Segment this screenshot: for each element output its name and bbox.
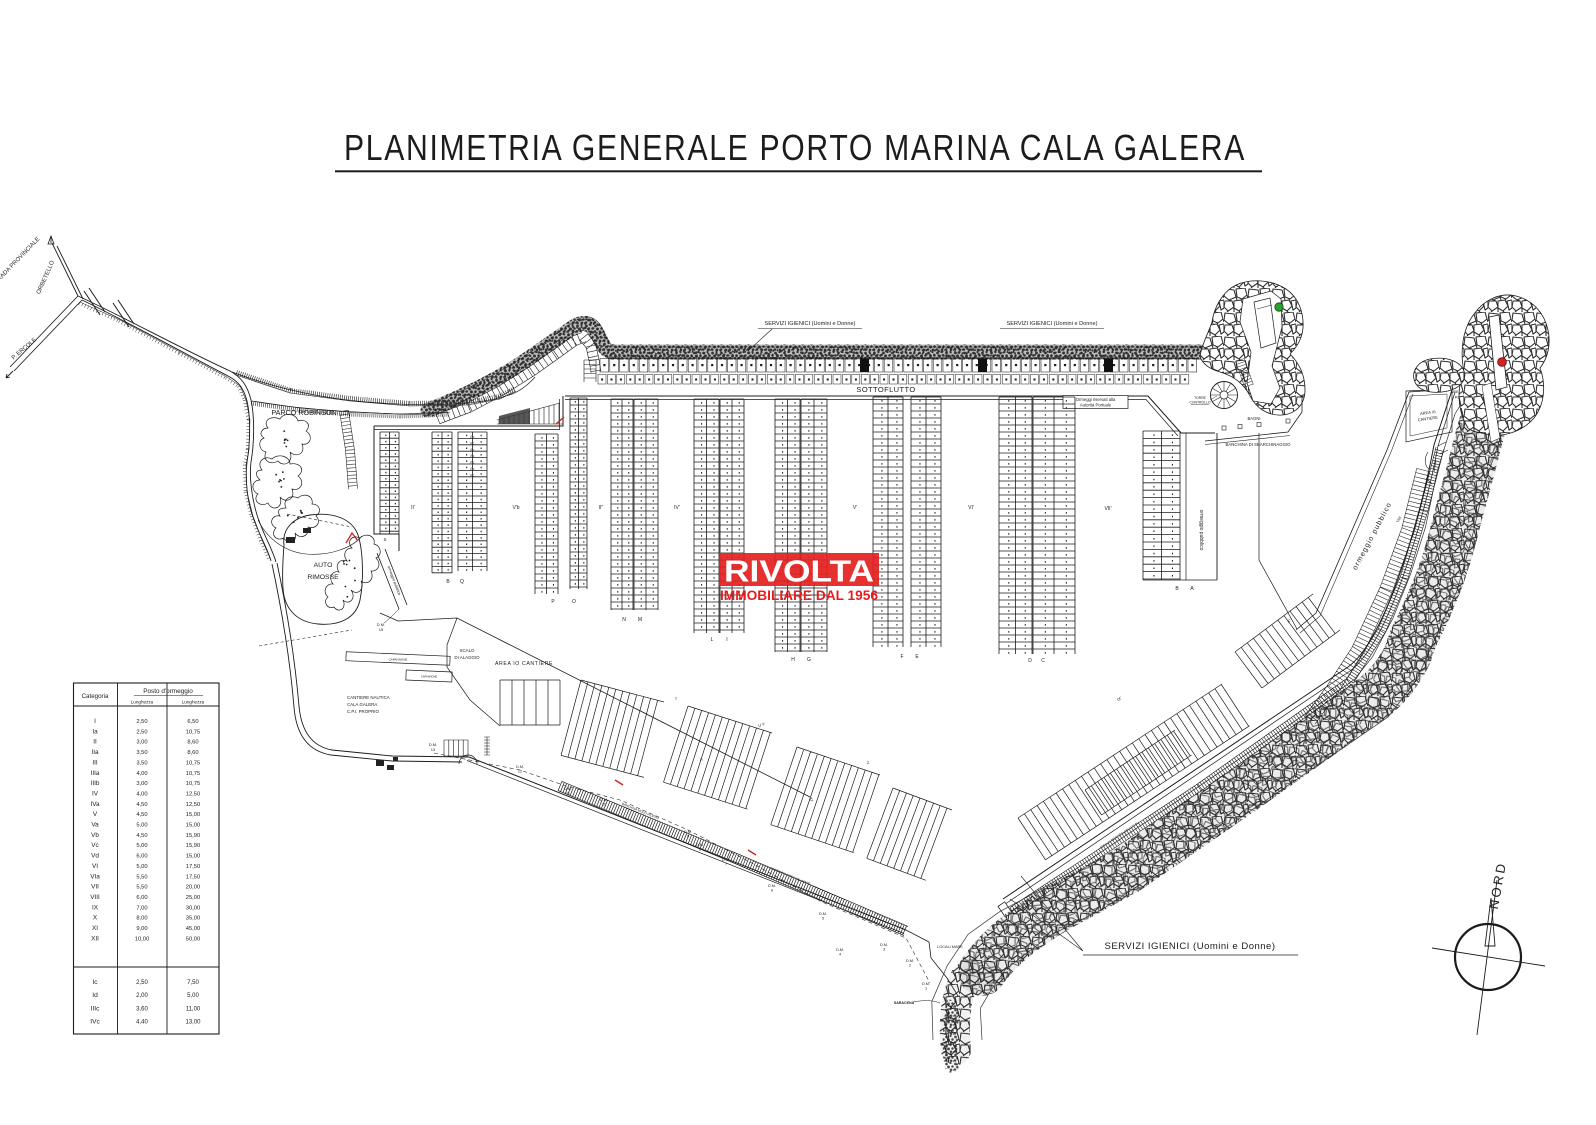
svg-text:VI: VI [92,863,98,870]
svg-text:I: I [94,718,96,725]
svg-text:13: 13 [431,747,436,752]
svg-text:AREA IO CANTIERE: AREA IO CANTIERE [495,661,553,667]
svg-text:2,50: 2,50 [136,729,147,735]
svg-text:CAPANNONE: CAPANNONE [389,658,408,662]
svg-text:IIIb: IIIb [91,780,100,787]
svg-text:Categoria: Categoria [82,693,109,700]
svg-text:20,00: 20,00 [186,885,201,891]
svg-text:45,00: 45,00 [186,926,201,932]
svg-text:V'c: V'c [470,467,475,471]
svg-text:II: II [93,739,97,746]
svg-text:V': V' [853,505,857,511]
svg-text:V: V [93,811,98,818]
svg-text:Lunghezza: Lunghezza [182,700,205,705]
svg-text:3,50: 3,50 [136,750,147,756]
svg-text:Autorità Portuale: Autorità Portuale [1080,403,1112,408]
svg-text:4,40: 4,40 [136,1020,148,1026]
svg-text:3,50: 3,50 [136,760,147,766]
svg-text:8,60: 8,60 [187,740,198,746]
svg-text:15,00: 15,00 [186,854,201,860]
svg-text:4,50: 4,50 [136,812,147,818]
svg-text:13,00: 13,00 [185,1020,201,1026]
svg-text:CANTIERE NAUTICA: CANTIERE NAUTICA [347,695,390,700]
svg-text:7,50: 7,50 [187,980,199,986]
svg-text:4: 4 [839,953,841,957]
svg-text:10,75: 10,75 [186,729,201,735]
svg-text:3,00: 3,00 [136,740,147,746]
svg-text:Ia: Ia [92,728,98,735]
svg-text:3: 3 [883,948,885,952]
svg-text:V'b: V'b [512,505,519,511]
svg-text:10,75: 10,75 [186,781,201,787]
svg-text:5,50: 5,50 [136,885,147,891]
svg-text:7: 7 [725,863,727,867]
svg-text:BAGNI: BAGNI [1247,416,1260,421]
svg-text:H: H [791,657,795,663]
svg-text:4,00: 4,00 [136,771,147,777]
svg-text:Id: Id [92,992,98,999]
svg-text:IIIa: IIIa [91,770,100,777]
svg-text:5,00: 5,00 [187,993,199,999]
svg-text:10,00: 10,00 [135,936,150,942]
svg-text:Ormeggi riservati alla: Ormeggi riservati alla [1076,397,1116,402]
svg-text:35,00: 35,00 [186,916,201,922]
svg-text:V'c: V'c [470,454,475,458]
svg-text:IVc: IVc [90,1019,100,1026]
svg-text:V'c: V'c [470,473,475,477]
svg-text:SERVIZI IGIENICI (Uomini e: SERVIZI IGIENICI (Uomini e Donne) [1104,941,1275,952]
svg-text:10,75: 10,75 [186,771,201,777]
svg-text:12,50: 12,50 [186,792,201,798]
svg-text:12: 12 [518,770,522,774]
svg-text:RIMOSSE: RIMOSSE [307,574,339,581]
svg-text:D.M.: D.M. [684,830,692,834]
svg-text:Vb: Vb [91,832,99,839]
svg-text:V'c: V'c [470,461,475,465]
svg-text:3,00: 3,00 [136,781,147,787]
svg-text:C: C [1041,658,1045,664]
svg-text:10: 10 [602,803,606,807]
svg-text:7,00: 7,00 [136,905,147,911]
svg-text:8,00: 8,00 [136,916,147,922]
svg-text:SERVIZI IGIENICI (Uomini e Don: SERVIZI IGIENICI (Uomini e Donne) [765,321,856,327]
svg-text:Posto d'ormeggio: Posto d'ormeggio [143,688,193,695]
svg-text:L: L [711,637,714,643]
svg-text:D.M.: D.M. [922,982,930,986]
svg-text:6: 6 [771,889,773,893]
svg-text:SOTTOFLUTTO: SOTTOFLUTTO [856,385,915,394]
svg-text:XI: XI [92,925,98,932]
svg-text:PLANIMETRIA GENERALE PORTO MAR: PLANIMETRIA GENERALE PORTO MARINA CALA G… [344,127,1246,168]
svg-text:II': II' [411,505,415,511]
svg-text:VI': VI' [968,505,974,511]
svg-text:2,50: 2,50 [136,980,148,986]
svg-text:8,60: 8,60 [187,750,198,756]
svg-text:4,00: 4,00 [136,792,147,798]
svg-text:8: 8 [699,848,701,852]
svg-text:D.M.: D.M. [768,884,776,888]
svg-text:5: 5 [822,917,824,921]
svg-text:VII': VII' [1104,506,1111,512]
svg-text:2,00: 2,00 [136,993,148,999]
svg-text:Q: Q [460,579,464,585]
svg-text:M: M [638,617,642,623]
svg-text:D.M.: D.M. [600,798,608,802]
svg-text:5,00: 5,00 [136,864,147,870]
svg-text:4,50: 4,50 [136,802,147,808]
svg-text:Lunghezza: Lunghezza [131,700,154,705]
svg-text:V'c: V'c [470,435,475,439]
svg-text:9,00: 9,00 [136,926,147,932]
svg-text:G: G [807,657,811,663]
svg-text:IIIc: IIIc [91,1005,100,1012]
svg-text:15,90: 15,90 [186,833,201,839]
svg-text:6,50: 6,50 [187,719,198,725]
svg-text:I: I [726,637,727,643]
svg-text:IX: IX [92,904,99,911]
svg-text:D.M.: D.M. [906,959,914,963]
svg-text:Vc: Vc [91,842,99,849]
svg-text:4,50: 4,50 [136,833,147,839]
svg-text:15,00: 15,00 [186,812,201,818]
svg-text:5,00: 5,00 [136,823,147,829]
svg-text:D: D [1028,658,1032,664]
svg-text:15,90: 15,90 [186,843,201,849]
svg-text:VIII: VIII [90,894,100,901]
svg-text:D.M.: D.M. [836,948,844,952]
svg-text:15,00: 15,00 [186,823,201,829]
svg-text:IIa: IIa [91,749,99,756]
svg-text:11,00: 11,00 [186,1006,201,1012]
svg-text:15: 15 [379,627,384,632]
svg-text:30,00: 30,00 [186,905,201,911]
svg-text:1: 1 [925,987,927,991]
svg-text:IMMOBILIARE DAL 1956: IMMOBILIARE DAL 1956 [720,588,878,603]
svg-text:Ic: Ic [92,979,98,986]
svg-text:IVa: IVa [90,801,100,808]
svg-text:V'c: V'c [470,448,475,452]
svg-text:DI ALAGGIO: DI ALAGGIO [454,655,480,660]
svg-text:17,50: 17,50 [186,874,201,880]
svg-text:12,50: 12,50 [186,802,201,808]
svg-text:CAPANNONE: CAPANNONE [421,675,438,679]
svg-text:AUTO: AUTO [314,562,333,569]
svg-text:2: 2 [909,964,911,968]
svg-text:5,00: 5,00 [136,843,147,849]
svg-text:III: III [92,759,98,766]
svg-text:17,50: 17,50 [186,864,201,870]
svg-text:3,60: 3,60 [136,1006,148,1012]
svg-text:C.P.I. PROPRIO: C.P.I. PROPRIO [347,709,379,714]
svg-text:D.M.: D.M. [696,843,704,847]
svg-text:XII: XII [91,935,99,942]
svg-text:SARACENA: SARACENA [894,1001,915,1005]
svg-text:D.M.: D.M. [564,787,572,791]
svg-text:2,50: 2,50 [136,719,147,725]
svg-text:V'c: V'c [470,441,475,445]
svg-text:II'': II'' [599,505,604,511]
svg-text:TORRE: TORRE [1194,396,1207,400]
svg-text:SERVIZI IGIENICI (Uomini e Don: SERVIZI IGIENICI (Uomini e Donne) [1007,321,1098,327]
svg-text:11: 11 [566,792,570,796]
svg-text:CONTROLLO: CONTROLLO [1189,401,1210,405]
svg-text:VIa: VIa [90,873,100,880]
svg-text:SCALO: SCALO [460,648,475,653]
svg-text:IV': IV' [674,505,680,511]
svg-text:5,50: 5,50 [136,874,147,880]
svg-text:IV: IV [92,791,99,798]
svg-text:BANCHINA DI SBARCHINAGGIO: BANCHINA DI SBARCHINAGGIO [1226,442,1292,447]
svg-text:ormeggio pubblico: ormeggio pubblico [1198,510,1204,551]
svg-text:PARCO ROBINSON: PARCO ROBINSON [271,408,336,417]
svg-text:25,00: 25,00 [186,895,201,901]
svg-text:D.M.: D.M. [516,765,524,769]
svg-text:50,00: 50,00 [186,936,201,942]
svg-text:VII: VII [91,884,99,891]
svg-text:S: S [383,537,386,542]
svg-text:6,00: 6,00 [136,854,147,860]
svg-text:9: 9 [687,835,689,839]
svg-text:CALA GALERA: CALA GALERA [347,702,377,707]
svg-text:D.M.: D.M. [722,858,730,862]
svg-text:D.M.: D.M. [880,943,888,947]
svg-text:X: X [93,915,98,922]
svg-text:N: N [622,617,626,623]
svg-text:D.M.: D.M. [819,912,827,916]
svg-text:F: F [900,654,903,660]
svg-text:Vd: Vd [91,853,99,860]
svg-text:RIVOLTA: RIVOLTA [724,554,874,589]
svg-text:10,75: 10,75 [186,760,201,766]
svg-text:Va: Va [91,822,99,829]
svg-text:6,00: 6,00 [136,895,147,901]
svg-text:O: O [572,599,576,605]
